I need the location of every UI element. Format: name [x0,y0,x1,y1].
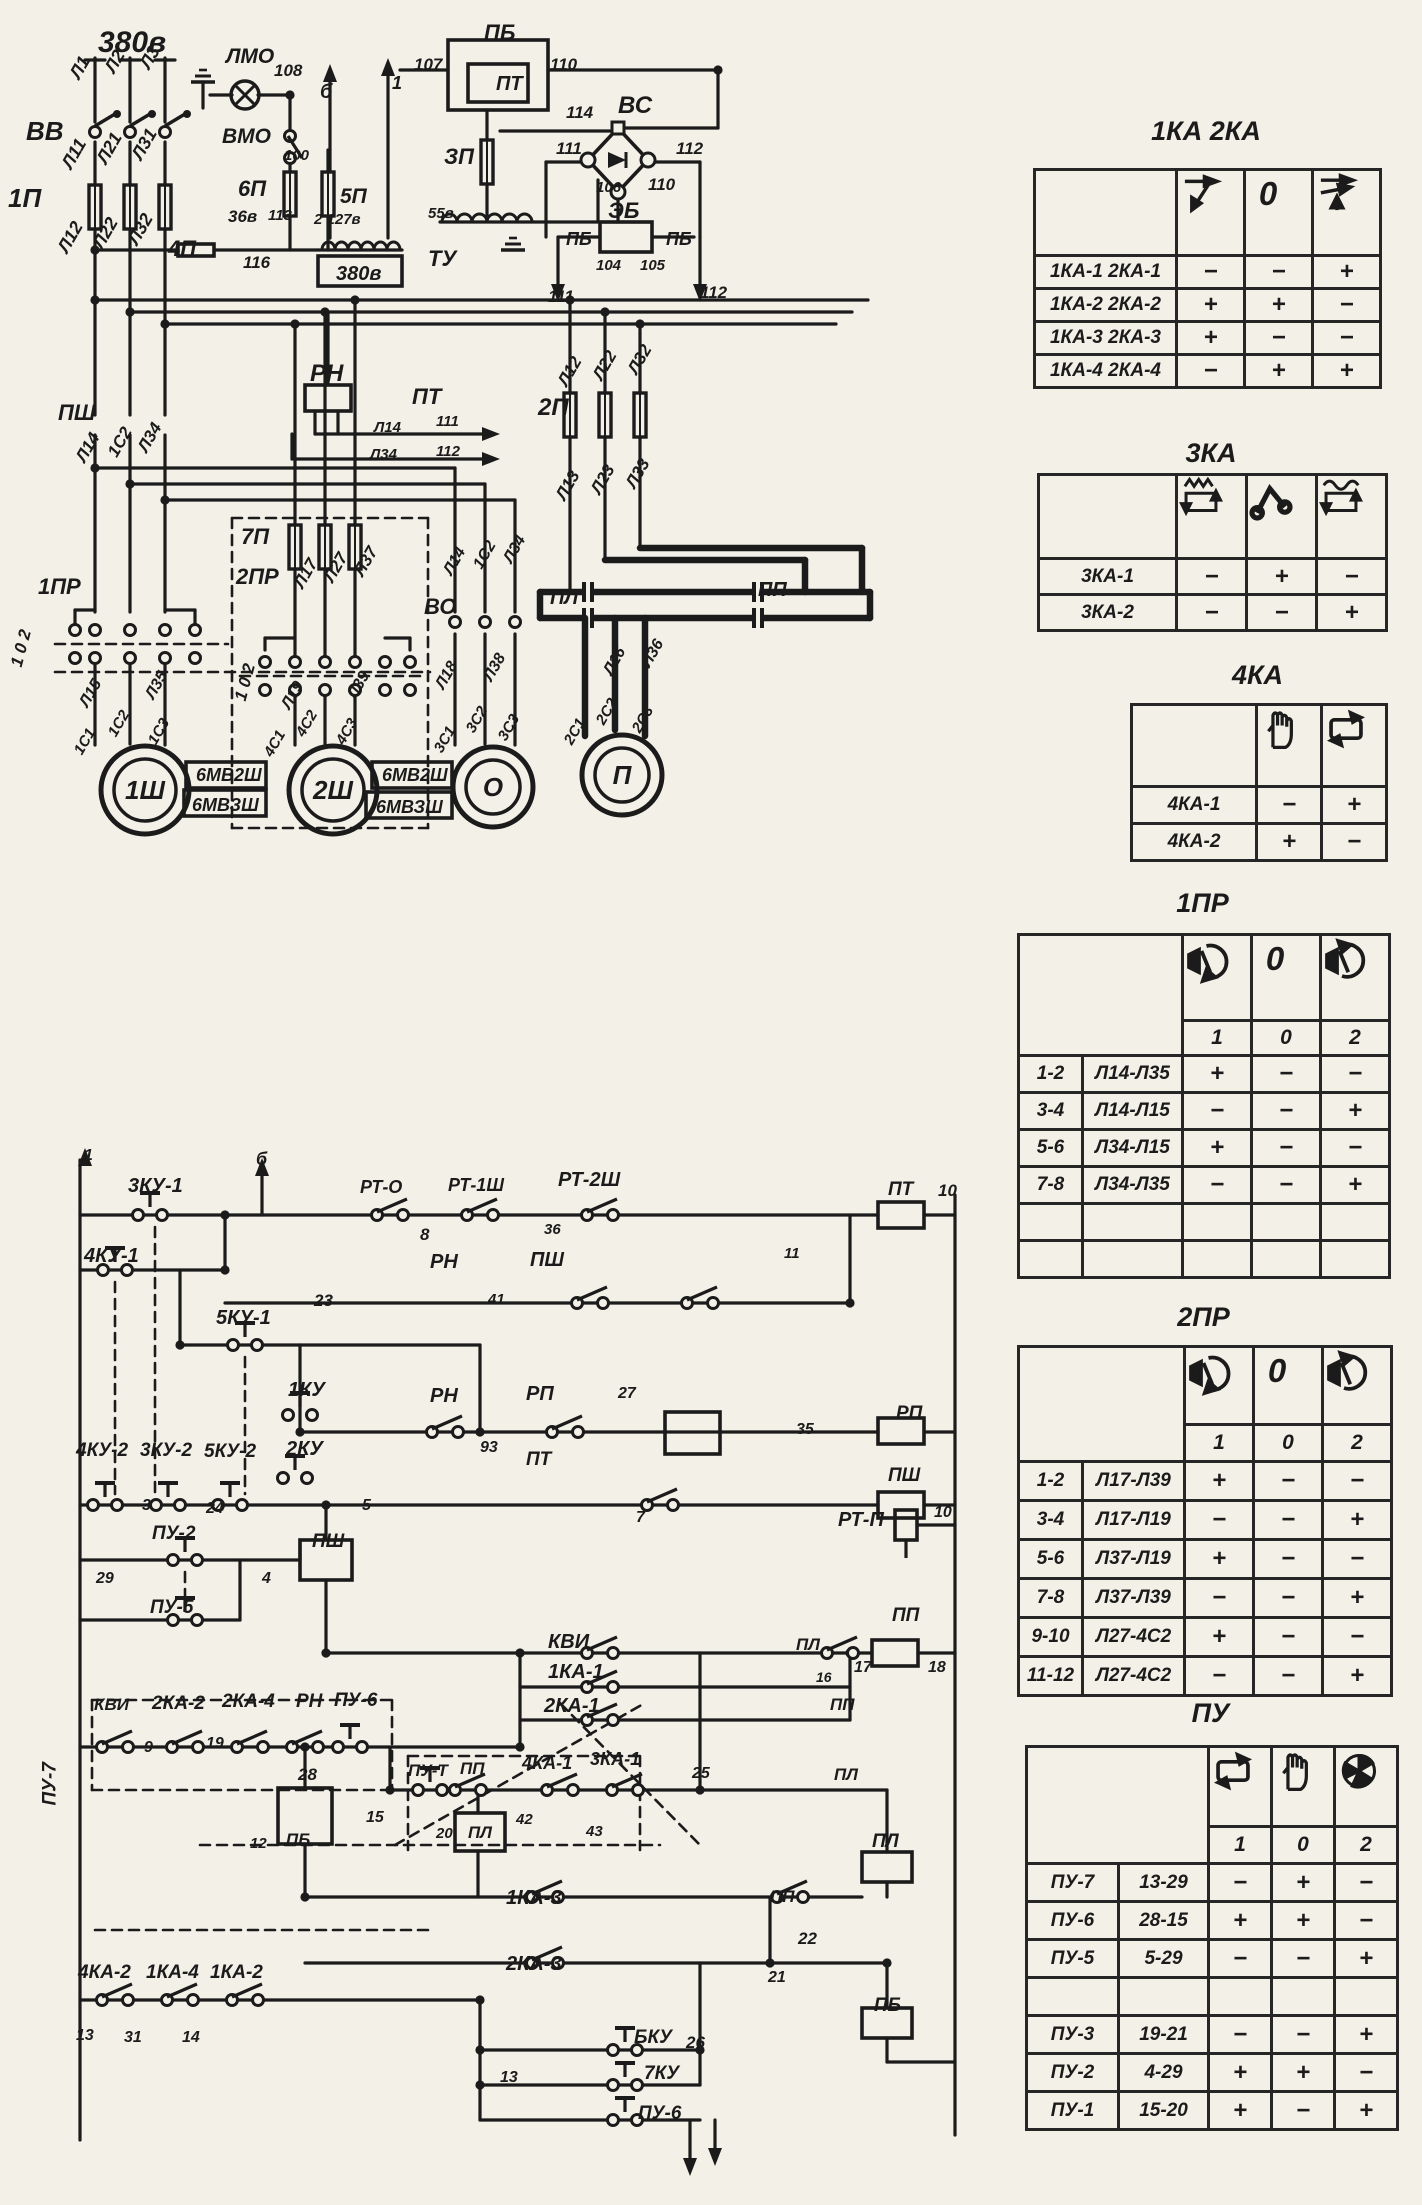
crank-rotate-ccw-icon [1186,1348,1236,1398]
contact-state-sign: − [1339,291,1353,319]
table-1pr-state-cell: + [1181,1128,1253,1168]
contact-state-sign: + [1203,291,1217,319]
table-1pr-title: 1ПР [1176,888,1228,919]
table-2pr-row-label: 5-6 [1017,1538,1084,1580]
contact-state-sign: − [1279,1171,1293,1199]
contact-state-sign: − [1203,357,1217,385]
row-label-text: Л17-Л39 [1096,1470,1171,1492]
circuit-label: ПУ-2 [152,1524,195,1543]
contact-state-sign: − [1271,324,1285,352]
table-1ka-2ka-state-cell: + [1175,287,1246,323]
table-pu-position-cell: 2 [1333,1825,1399,1865]
row-label-text: Л37-Л39 [1096,1587,1171,1609]
table-3ka-header-blank [1037,473,1178,560]
table-1pr-header-icon: 0 [1250,933,1322,1022]
svg-text:0: 0 [1266,940,1285,977]
row-label-text: 7-8 [1037,1587,1064,1609]
circuit-label: ПТ [412,386,441,408]
contact-state-sign: + [1233,2097,1247,2125]
table-pu-state-cell: − [1333,1862,1399,1903]
circuit-label: 1 [392,74,402,92]
table-1pr-row-label [1081,1239,1184,1279]
circuit-label: 5 [362,1498,371,1514]
circuit-label: 7КУ [644,2064,679,2083]
table-1pr-position-cell: 0 [1250,1019,1322,1057]
table-4ka-state-cell: − [1255,785,1323,825]
circuit-label: 3КУ-1 [128,1176,183,1196]
table-1pr-row-label [1017,1239,1084,1279]
circuit-label: 24 [206,1501,224,1517]
contact-state-sign: − [1281,1662,1295,1690]
table-1ka-2ka-state-cell: − [1175,254,1246,290]
table-pu: 102ПУ-713-29−+−ПУ-628-15++−ПУ-55-29−−+ПУ… [1025,1745,1396,2128]
row-label-text: 19-21 [1139,2024,1188,2046]
row-label-text: 1КА-4 2КА-4 [1050,360,1161,382]
contact-state-sign: − [1204,599,1218,627]
table-pu-state-cell: + [1270,2052,1336,2093]
table-3ka-state-cell: − [1175,557,1248,596]
contact-state-sign: − [1296,2097,1310,2125]
table-3ka-header-icon [1245,473,1318,560]
circuit-label: П [613,762,632,788]
contact-state-sign: + [1212,1467,1226,1495]
position-number: 1 [1234,1833,1246,1857]
row-label-text: 1-2 [1037,1063,1064,1085]
circuit-label: РН [296,1692,322,1711]
table-4ka-row-label: 4КА-1 [1130,785,1258,825]
contact-state-sign: + [1212,1623,1226,1651]
circuit-label: 1Ш [125,777,165,803]
table-1ka-2ka-header-blank [1033,168,1178,257]
contact-state-sign: + [1350,1662,1364,1690]
contact-state-sign: − [1204,563,1218,591]
row-label-text: ПУ-3 [1051,2024,1094,2046]
crank-rotate-ccw-icon [1184,936,1234,986]
circuit-label: 55в [428,206,454,221]
table-1ka-2ka-state-cell: − [1175,353,1246,389]
table-1pr-state-cell [1181,1239,1253,1279]
circuit-label: 1 [84,1148,93,1164]
circuit-label: 2Ш [313,777,353,803]
row-label-text: Л34-Л35 [1095,1174,1170,1196]
table-4ka-header-blank [1130,703,1258,788]
circuit-label: 14 [182,2030,200,2046]
table-4ka-header-icon [1255,703,1323,788]
circuit-label: ПЛ [796,1636,820,1653]
table-3ka-state-cell: − [1245,593,1318,632]
circuit-label: 4КА-1 [522,1754,572,1772]
contact-state-sign: − [1233,1945,1247,1973]
row-label-text: ПУ-2 [1051,2062,1094,2084]
contact-state-sign: − [1281,1506,1295,1534]
row-label-text: Л37-Л19 [1096,1548,1171,1570]
table-2pr-header-blank [1017,1345,1186,1463]
contact-state-sign: + [1348,1171,1362,1199]
table-1pr: 10021-2Л14-Л35+−−3-4Л14-Л15−−+5-6Л34-Л15… [1017,933,1388,1276]
circuit-label: 2КА-1 [544,1696,600,1716]
position-number: 2 [1360,1833,1372,1857]
table-pu-state-cell: − [1270,2090,1336,2131]
circuit-label: 35 [796,1422,814,1438]
circuit-label: ПТ [526,1450,551,1469]
table-2pr-state-cell: − [1252,1499,1324,1541]
circuit-label: 36в [228,208,257,225]
table-2pr-header-icon [1183,1345,1255,1426]
table-3ka-row-label: 3КА-2 [1037,593,1178,632]
contact-state-sign: − [1296,1945,1310,1973]
circuit-label: 100 [284,148,309,163]
table-pu-title: ПУ [1192,1698,1230,1729]
circuit-label: 13 [76,2028,94,2044]
circuit-label: ПБ [484,22,515,44]
circuit-label: 1КА-4 [146,1963,199,1982]
table-2pr-row-label: 3-4 [1017,1499,1084,1541]
table-pu-row-label: ПУ-2 [1025,2052,1120,2093]
circuit-label: ПШ [58,402,95,424]
contact-state-sign: + [1212,1545,1226,1573]
circuit-label: РП [896,1404,922,1423]
fan-icon [1336,1748,1382,1794]
table-1pr-state-cell: − [1250,1091,1322,1131]
contact-state-sign: + [1296,1907,1310,1935]
contact-state-sign: + [1296,1869,1310,1897]
table-pu-state-cell: − [1207,1938,1273,1979]
circuit-label: ПУ-6 [638,2104,681,2123]
circuit-label: 106 [596,180,621,195]
table-1pr-state-cell: − [1250,1128,1322,1168]
circuit-label: Л14 [374,420,401,435]
row-label-text: 3КА-2 [1081,602,1134,624]
circuit-label: 36 [544,1222,561,1237]
contact-state-sign: + [1203,324,1217,352]
circuit-label: ТУ [428,248,456,270]
row-label-text: ПУ-6 [1051,1910,1094,1932]
table-pu-row-label: 4-29 [1117,2052,1210,2093]
table-pu-header-icon [1207,1745,1273,1828]
table-pu-state-cell: + [1333,2090,1399,2131]
circuit-label: 6МВЗШ [192,796,259,814]
position-number: 0 [1297,1833,1309,1857]
table-2pr-row-label: 11-12 [1017,1655,1084,1697]
row-label-text: Л27-4С2 [1096,1665,1171,1687]
circuit-label: ПУ-Т [408,1762,448,1779]
row-label-text: 4-29 [1144,2062,1182,2084]
row-label-text: 1-2 [1037,1470,1064,1492]
lever-icon [1248,476,1294,522]
circuit-label: 29 [96,1571,114,1587]
circuit-label: 4КА-2 [78,1963,131,1982]
table-1ka-2ka-title: 1КА 2КА [1151,116,1261,147]
table-pu-state-cell: − [1333,1900,1399,1941]
circuit-label: ВС [618,94,652,118]
table-2pr-state-cell: − [1183,1577,1255,1619]
circuit-label: ПШ [312,1532,344,1551]
table-pu-row-label: 13-29 [1117,1862,1210,1903]
hand-icon [1258,706,1304,752]
row-label-text: 3КА-1 [1081,566,1134,588]
table-1pr-state-cell [1250,1239,1322,1279]
contact-state-sign: − [1212,1662,1226,1690]
table-3ka-title: 3КА [1185,438,1236,469]
circuit-label: 105 [640,258,665,273]
svg-text:0: 0 [1268,1352,1287,1389]
circuit-label: 4КУ-1 [84,1246,139,1266]
contact-state-sign: − [1281,1467,1295,1495]
contact-state-sign: − [1281,1545,1295,1573]
circuit-label: БКУ [634,2028,672,2047]
table-2pr-state-cell: − [1321,1616,1393,1658]
position-number: 2 [1351,1431,1363,1455]
circuit-label: 10 [934,1505,952,1521]
contact-state-sign: − [1233,2021,1247,2049]
contact-state-sign: − [1279,1060,1293,1088]
circuit-label: 13 [500,2070,518,2086]
circuit-label: РН [430,1252,458,1272]
crank-rotate-cw-icon [1324,1348,1374,1398]
table-1ka-2ka-state-cell: + [1243,353,1314,389]
circuit-label: ПТ [496,74,523,94]
table-2pr-state-cell: + [1321,1499,1393,1541]
row-label-text: 9-10 [1031,1626,1069,1648]
circuit-label: 7П [241,526,269,548]
contact-state-sign: − [1344,563,1358,591]
table-pu-row-label: 19-21 [1117,2014,1210,2055]
table-1ka-2ka-row-label: 1КА-1 2КА-1 [1033,254,1178,290]
table-2pr-state-cell: − [1252,1655,1324,1697]
row-label-text: 5-6 [1037,1548,1064,1570]
circuit-label: ПБ [874,1996,901,2015]
table-2pr-state-cell: − [1183,1655,1255,1697]
circuit-label: ПТ [888,1180,913,1199]
circuit-label: ПП [460,1760,484,1777]
row-label-text: 1КА-1 2КА-1 [1050,261,1161,283]
circuit-label: 41 [488,1292,505,1307]
circuit-label: 2П [538,396,569,420]
row-label-text: 4КА-1 [1168,794,1221,816]
table-1pr-state-cell: − [1181,1091,1253,1131]
circuit-label: 2КУ [286,1439,323,1459]
position-number: 2 [1349,1026,1361,1050]
circuit-label: 31 [124,2030,142,2046]
circuit-label: ВО [424,596,456,618]
contact-state-sign: + [1271,357,1285,385]
circuit-label: 27 [618,1386,636,1402]
row-label-text: 1КА-2 2КА-2 [1050,294,1161,316]
circuit-label: 1КА-2 [210,1963,263,1982]
circuit-label: 104 [596,258,621,273]
table-pu-position-cell: 0 [1270,1825,1336,1865]
table-pu-row-label: ПУ-3 [1025,2014,1120,2055]
circuit-label: 1П [8,185,41,211]
table-2pr-row-label: Л37-Л39 [1081,1577,1186,1619]
circuit-label: ПБ [286,1831,310,1848]
table-3ka-header-icon [1175,473,1248,560]
spindle-rotate-right-icon [1314,171,1360,217]
table-1pr-row-label [1081,1202,1184,1242]
table-pu-row-label [1117,1976,1210,2017]
circuit-label: 28 [298,1766,317,1783]
contact-state-sign: + [1359,2097,1373,2125]
table-2pr-state-cell: − [1252,1616,1324,1658]
contact-state-sign: − [1359,1869,1373,1897]
table-pu-state-cell: − [1207,1862,1273,1903]
table-pu-state-cell: + [1333,2014,1399,2055]
circuit-label: 110 [550,56,577,73]
table-1pr-state-cell: + [1181,1054,1253,1094]
table-2pr-state-cell: − [1252,1538,1324,1580]
table-pu-state-cell: + [1270,1900,1336,1941]
contact-state-sign: − [1339,324,1353,352]
crank-rotate-cw-icon [1322,936,1372,986]
circuit-label: 16 [816,1670,832,1684]
table-pu-position-cell: 1 [1207,1825,1273,1865]
contact-state-sign: + [1296,2059,1310,2087]
circuit-label: 21 [768,1970,786,1986]
circuit-label: ПШ [530,1250,564,1270]
circuit-label: 1КА-1 [548,1662,604,1682]
table-1pr-header-blank [1017,933,1184,1057]
circuit-label: ПШ [888,1466,920,1485]
table-2pr-position-cell: 1 [1183,1423,1255,1463]
contact-state-sign: + [1233,2059,1247,2087]
circuit-label: 6МВ2Ш [382,766,448,784]
circuit-label: 1КА-3 [506,1888,562,1908]
contact-state-sign: − [1212,1506,1226,1534]
table-1ka-2ka-row-label: 1КА-4 2КА-4 [1033,353,1178,389]
circuit-label: ЗП [444,146,474,168]
table-4ka: 4КА-1−+4КА-2+− [1130,703,1385,859]
contact-state-sign: − [1348,1060,1362,1088]
circuit-label: ПУ-7 [41,1762,60,1805]
circuit-label: ВМО [222,126,271,147]
spindle-rotate-left-icon [1178,171,1224,217]
table-pu-header-icon [1333,1745,1399,1828]
circuit-label: 114 [566,104,593,121]
contact-state-sign: − [1281,1584,1295,1612]
contact-state-sign: + [1210,1060,1224,1088]
contact-state-sign: − [1212,1584,1226,1612]
table-1pr-state-cell: + [1319,1165,1391,1205]
circuit-label: 112 [676,140,703,157]
zero-position-icon: 0 [1246,171,1290,215]
table-pu-state-cell: − [1270,2014,1336,2055]
circuit-label: ЛМО [226,46,274,67]
table-2pr-state-cell: + [1183,1616,1255,1658]
row-label-text: 5-29 [1144,1948,1182,1970]
table-1ka-2ka-state-cell: − [1311,320,1382,356]
circuit-label: 108 [274,62,302,79]
table-1pr-row-label [1017,1202,1084,1242]
circuit-label: 3 [142,1498,151,1514]
table-pu-state-cell: + [1207,2052,1273,2093]
contact-state-sign: − [1348,1134,1362,1162]
table-pu-state-cell [1270,1976,1336,2017]
row-label-text: 5-6 [1037,1137,1064,1159]
circuit-label: 112 [700,284,727,301]
table-1ka-2ka-state-cell: − [1311,287,1382,323]
circuit-label: 2КА-3 [506,1954,562,1974]
position-number: 1 [1211,1026,1223,1050]
circuit-label: 8 [420,1226,429,1243]
circuit-label: ПБ [666,230,692,248]
circuit-label: 3КА-1 [590,1750,640,1768]
table-2pr-state-cell: − [1321,1538,1393,1580]
table-pu-state-cell: + [1333,1938,1399,1979]
circuit-label: 2 127в [314,212,361,227]
circuit-label: 2КА-4 [222,1692,275,1711]
table-4ka-state-cell: + [1320,785,1388,825]
table-2pr-title: 2ПР [1177,1302,1229,1333]
hand-icon [1273,1748,1319,1794]
circuit-label: ЭБ [608,200,639,222]
contact-state-sign: + [1339,258,1353,286]
table-1pr-row-label: Л14-Л35 [1081,1054,1184,1094]
contact-state-sign: − [1279,1097,1293,1125]
table-3ka-state-cell: − [1315,557,1388,596]
contact-state-sign: − [1359,2059,1373,2087]
circuit-label: 111 [556,140,582,157]
circuit-label: ПУ-5 [150,1598,193,1617]
table-pu-row-label: ПУ-7 [1025,1862,1120,1903]
table-1pr-row-label: Л14-Л15 [1081,1091,1184,1131]
circuit-label: 19 [206,1736,224,1752]
contact-state-sign: − [1271,258,1285,286]
table-pu-state-cell: − [1270,1938,1336,1979]
contact-state-sign: − [1359,1907,1373,1935]
table-pu-state-cell: − [1207,2014,1273,2055]
table-1pr-state-cell [1250,1202,1322,1242]
table-2pr-state-cell: + [1321,1577,1393,1619]
table-1ka-2ka-state-cell: − [1243,320,1314,356]
circuit-label: КВИ [548,1632,589,1652]
circuit-label: 6МВ2Ш [196,766,262,784]
row-label-text: Л14-Л35 [1095,1063,1170,1085]
table-1pr-row-label: 5-6 [1017,1128,1084,1168]
circuit-label: 15 [366,1810,384,1826]
table-2pr-state-cell: + [1321,1655,1393,1697]
table-1pr-state-cell [1319,1239,1391,1279]
circuit-label: 17 [854,1660,872,1676]
cycle-loop-icon [1323,706,1369,752]
table-4ka-title: 4КА [1232,660,1283,691]
row-label-text: 1КА-3 2КА-3 [1050,327,1161,349]
table-2pr-state-cell: + [1183,1460,1255,1502]
table-3ka-header-icon [1315,473,1388,560]
row-label-text: 28-15 [1139,1910,1188,1932]
circuit-label: 23 [314,1292,333,1309]
table-1pr-state-cell: + [1319,1091,1391,1131]
circuit-label: 4 [262,1571,271,1587]
circuit-label: ПУ-6 [334,1691,377,1710]
table-1ka-2ka-header-icon [1311,168,1382,257]
contact-state-sign: − [1210,1171,1224,1199]
contact-state-sign: + [1233,1907,1247,1935]
circuit-label: 6МВЗШ [376,798,443,816]
table-2pr-state-cell: − [1252,1460,1324,1502]
row-label-text: ПУ-5 [1051,1948,1094,1970]
contact-state-sign: + [1282,828,1296,856]
table-2pr-row-label: Л27-4С2 [1081,1616,1186,1658]
circuit-label: б [320,82,332,102]
table-2pr-row-label: Л17-Л39 [1081,1460,1186,1502]
table-4ka-state-cell: + [1255,822,1323,862]
circuit-label: РТ-О [360,1178,402,1196]
table-4ka-state-cell: − [1320,822,1388,862]
circuit-label: 112 [436,444,460,459]
table-3ka-state-cell: − [1175,593,1248,632]
table-1ka-2ka-state-cell: + [1311,353,1382,389]
contact-state-sign: − [1210,1097,1224,1125]
